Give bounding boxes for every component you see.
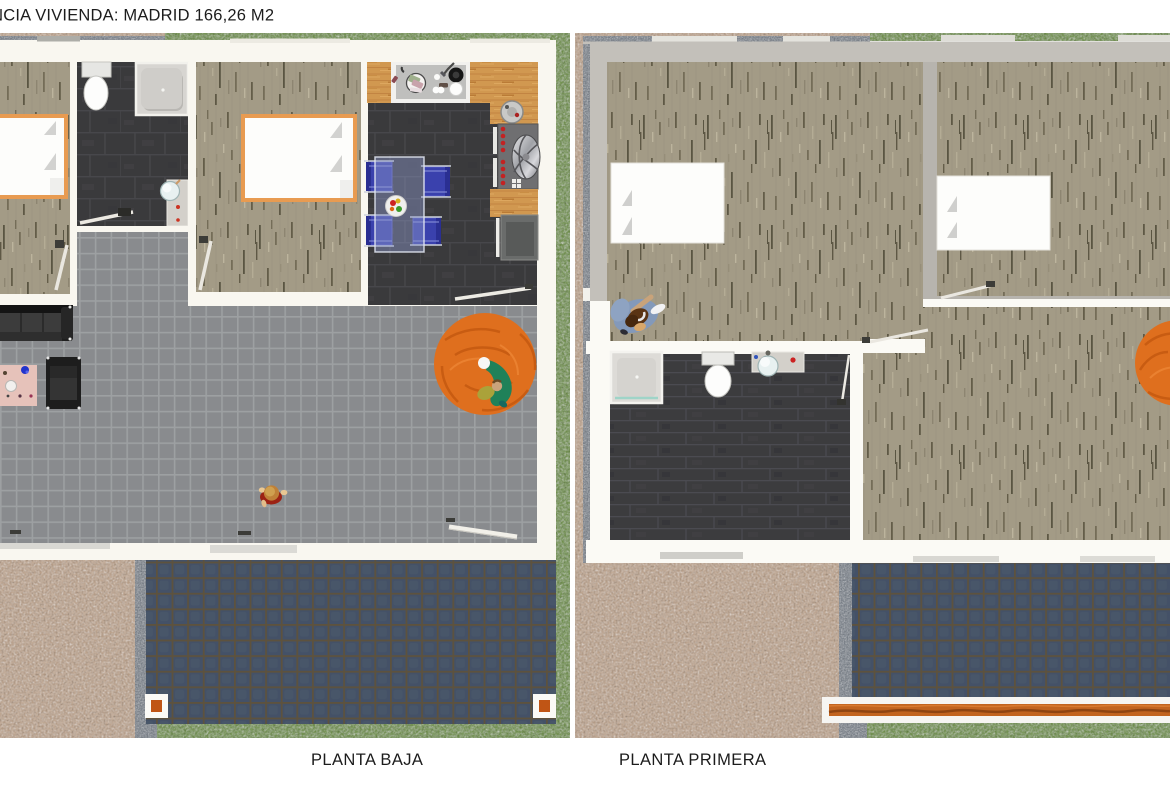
svg-text:PLANTA PRIMERA: PLANTA PRIMERA bbox=[619, 751, 766, 769]
svg-text:REFERENCIA VIVIENDA: MADRID 16: REFERENCIA VIVIENDA: MADRID 166,26 M2 bbox=[0, 7, 274, 25]
svg-text:PLANTA BAJA: PLANTA BAJA bbox=[311, 751, 423, 769]
